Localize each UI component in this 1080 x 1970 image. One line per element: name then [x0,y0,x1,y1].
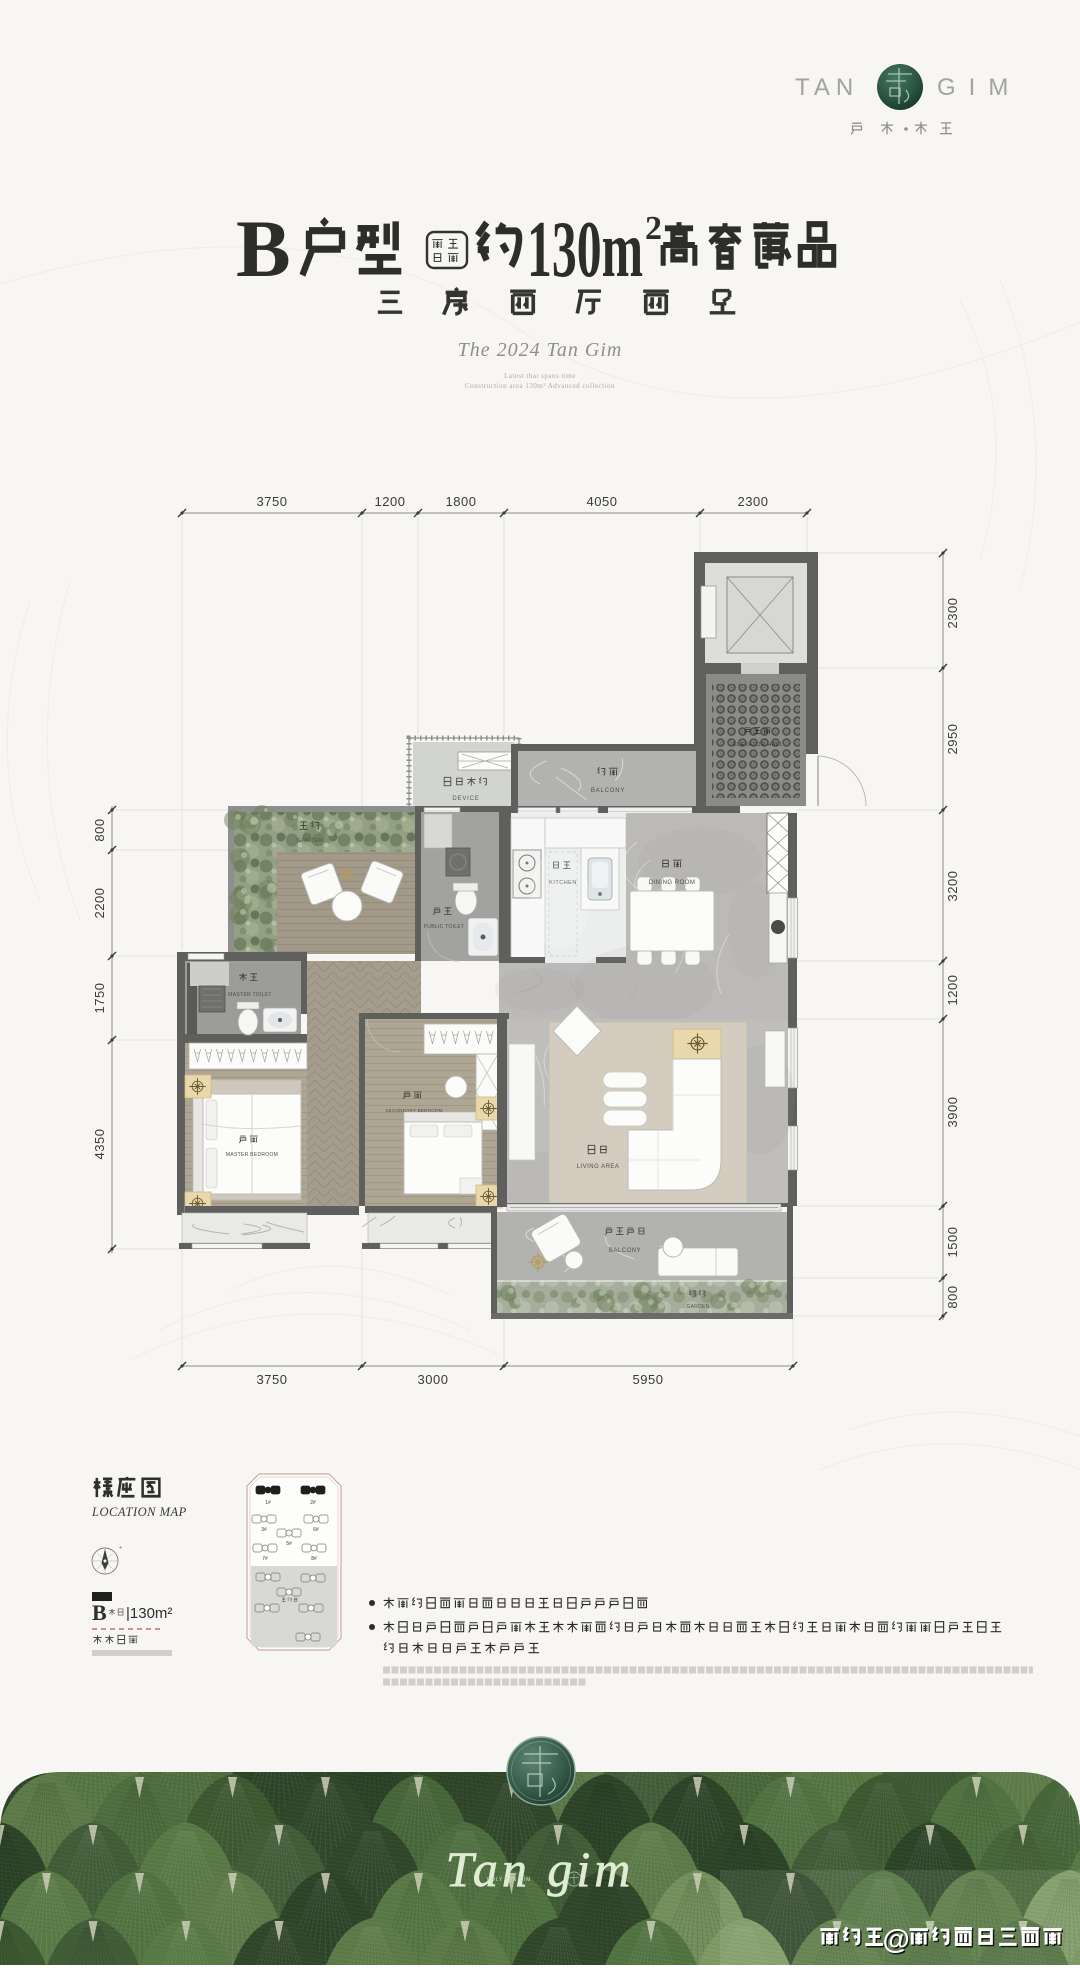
svg-text:BALCONY: BALCONY [591,788,625,794]
svg-text:2300: 2300 [945,598,960,629]
svg-text:1200: 1200 [375,494,406,509]
svg-text:TAN: TAN [795,74,859,101]
svg-text:Tan gim: Tan gim [446,1841,635,1897]
svg-text:6#: 6# [313,1527,319,1533]
svg-text:1750: 1750 [92,983,107,1014]
svg-text:LOCATION MAP: LOCATION MAP [91,1505,187,1519]
svg-text:DINING ROOM: DINING ROOM [649,880,696,886]
svg-text:7#: 7# [262,1556,268,1562]
svg-text:MASTER TOILET: MASTER TOILET [228,992,271,998]
svg-text:ELEVATOR HALL: ELEVATOR HALL [733,742,783,748]
svg-text:@: @ [883,1924,910,1955]
svg-text:5#: 5# [286,1541,292,1547]
svg-text:3750: 3750 [257,1372,288,1387]
svg-text:1500: 1500 [945,1227,960,1258]
svg-text:3200: 3200 [945,871,960,902]
svg-text:4050: 4050 [587,494,618,509]
svg-text:2: 2 [645,210,662,247]
svg-text:MASTER BEDROOM: MASTER BEDROOM [226,1152,278,1158]
svg-text:DEVICE: DEVICE [452,796,479,802]
svg-text:4350: 4350 [92,1129,107,1160]
svg-text:3900: 3900 [945,1097,960,1128]
svg-text:2300: 2300 [738,494,769,509]
svg-text:3#: 3# [261,1527,267,1533]
svg-text:2950: 2950 [945,724,960,755]
svg-text:800: 800 [945,1285,960,1308]
svg-text:GARDEN: GARDEN [297,838,324,844]
svg-text:3750: 3750 [257,494,288,509]
svg-text:PUBLIC TOILET: PUBLIC TOILET [424,924,465,930]
svg-text:3000: 3000 [418,1372,449,1387]
svg-text:1200: 1200 [945,975,960,1006]
svg-text:Construction area 130m² Advanc: Construction area 130m² Advanced collect… [465,382,615,390]
svg-text:1800: 1800 [446,494,477,509]
svg-text:SECONDARY BEDROOM: SECONDARY BEDROOM [385,1108,442,1113]
svg-text:2#: 2# [310,1500,316,1506]
svg-text:800: 800 [92,818,107,841]
svg-text:GIM: GIM [937,74,1021,101]
svg-text:|130m²: |130m² [126,1605,172,1622]
svg-text:8#: 8# [311,1556,317,1562]
svg-text:2200: 2200 [92,888,107,919]
svg-text:GARDEN: GARDEN [686,1304,709,1310]
svg-text:*: * [119,1545,122,1554]
svg-text:Latest that spans time: Latest that spans time [504,372,576,380]
svg-text:B: B [92,1600,107,1625]
svg-text:130m: 130m [527,206,643,294]
svg-text:LIVING AREA: LIVING AREA [577,1164,620,1170]
svg-text:1#: 1# [265,1500,271,1506]
svg-text:The 2024 Tan Gim: The 2024 Tan Gim [458,339,623,361]
svg-text:BALCONY: BALCONY [609,1248,641,1254]
svg-text:B: B [236,203,291,294]
svg-text:5950: 5950 [633,1372,664,1387]
svg-text:POLY TAN GIM: POLY TAN GIM [487,1877,531,1883]
